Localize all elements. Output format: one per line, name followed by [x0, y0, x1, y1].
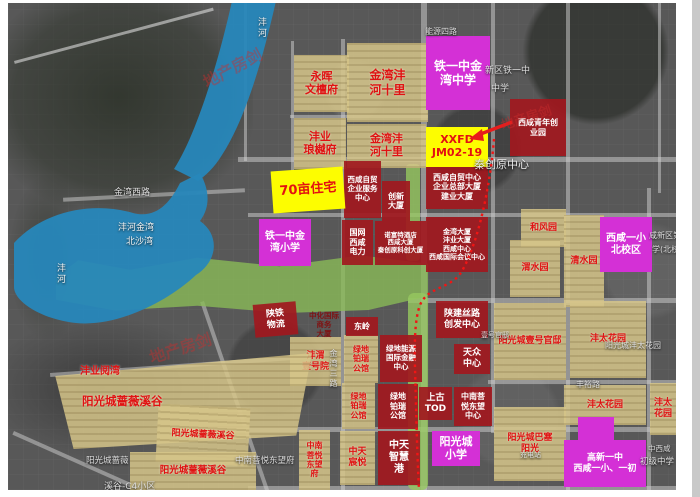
label-line: 国网 — [350, 228, 366, 237]
label-line: 湾中学 — [440, 73, 476, 87]
label-line: 西咸一小、一初 — [573, 464, 636, 475]
label-line: 沣太花园 — [587, 400, 623, 411]
block-lvdi-borui-guan-c: 绿地 铂瑞 公馆 — [378, 384, 418, 429]
label-line: 金湾大厦 — [443, 228, 471, 236]
label-line: 宸悦 — [348, 458, 366, 469]
block-dongling: 东岭 — [346, 317, 378, 336]
road-label-jinwan-sanlu: 金湾三路 — [328, 349, 339, 389]
label-line: 业园 — [530, 128, 546, 137]
label-line: 沣业大厦 — [443, 236, 471, 244]
bg-label-qiangwei-1: 阳光城蔷薇 — [86, 454, 129, 466]
label-line: 悦东望 — [461, 402, 485, 411]
label-line: 大厦 — [304, 329, 344, 338]
label-line: 河十里 — [370, 146, 403, 159]
label-line: 创发中心 — [444, 320, 480, 331]
road-label-jinwan-xilu: 金湾西路 — [114, 185, 150, 198]
label-line: TOD — [425, 404, 446, 415]
block-zhongtian-chenyue: 中天 宸悦 — [340, 431, 375, 485]
label-line: 电力 — [350, 247, 366, 256]
road-label-fengyu-lu: 丰裕路 — [576, 379, 600, 390]
label-line: 高新一中 — [587, 453, 623, 464]
label-line: 文檀府 — [305, 84, 338, 97]
label-line: 永晖 — [311, 71, 333, 84]
label-line: 西咸自贸中心 — [433, 173, 481, 182]
label-line: 东岭 — [354, 322, 370, 331]
bg-label-qiangwei-2: 溪谷-C4小区 — [104, 479, 155, 490]
label-line: 中南 — [307, 441, 323, 450]
label-line: 创新 — [388, 192, 404, 201]
label-line: 铂瑞 — [353, 354, 369, 363]
label-line: 河十里 — [369, 83, 405, 97]
label-line: 西咸 — [350, 238, 366, 247]
right-edge-strip — [692, 0, 700, 497]
label-line: 70亩住宅 — [279, 180, 337, 199]
block-basai-yangguang: 阳光城巴塞 阳光 — [494, 407, 566, 481]
label-line: 阳光城蔷薇溪谷 — [160, 465, 227, 476]
label-line: 中心 — [394, 363, 409, 372]
label-line: 铂瑞 — [390, 402, 406, 411]
bg-label-chuji-zhongxue: 初级中学 — [640, 455, 674, 467]
label-line: 沣业 — [309, 131, 331, 144]
block-fengtai-huayuan-3: 沣太 花园 — [650, 383, 676, 435]
block-tieyizhong-jinwan-zhongxue: 铁一中金 湾中学 — [426, 36, 490, 110]
label-line: 铂瑞 — [351, 401, 367, 410]
label-line: 公馆 — [353, 364, 369, 373]
block-tieyizhong-jinwan-xiaoxue: 铁一中金 湾小学 — [259, 219, 311, 266]
block-xixian-yixiao-beixiaoqu: 西咸一小 北校区 — [600, 217, 652, 272]
label-line: 中天 — [389, 440, 409, 452]
label-line: 天众 — [463, 348, 481, 359]
block-yangguangcheng-xiaoxue: 阳光城 小学 — [432, 431, 480, 466]
water-label-fenghe-jinwan: 沣河金湾 — [118, 220, 154, 233]
label-line: 企业总部大厦 — [433, 182, 481, 191]
block-jinwan-dasha-qun: 金湾大厦 沣业大厦 西咸中心 西咸国际会议中心 — [426, 217, 488, 272]
block-lvdi-borui-guan-b: 绿地 铂瑞 公馆 — [342, 383, 375, 429]
bg-label-chongdianzhan: 充电站 — [520, 450, 541, 460]
block-lvdi-nengyuan: 绿地能源 国际金融 中心 — [380, 335, 422, 382]
label-line: 沣太 — [654, 398, 672, 409]
label-line: 小学 — [445, 449, 467, 462]
label-line: 西咸中心 — [443, 245, 471, 253]
bg-label-xianxinqu: 咸新区第 — [649, 230, 676, 241]
label-line: 公馆 — [351, 411, 367, 420]
block-zhongnan-dongwang-zhongxin: 中南菩 悦东望 中心 — [454, 387, 492, 426]
block-gaoxin-yizhong: 高新一中 西咸一小、一初 — [564, 440, 646, 487]
block-jinwan-fenghe-shili-north: 金湾沣 河十里 — [347, 43, 428, 122]
label-line: 阳光城 — [440, 436, 473, 449]
block-yangguangcheng-yihao-guandi: 阳光城壹号官邸 — [494, 303, 566, 380]
label-line: 和风园 — [530, 223, 557, 234]
label-line: 陕建丝路 — [444, 309, 480, 320]
label-line: 阳光城蔷薇溪谷 — [171, 428, 234, 442]
bg-label-yihao-guandi: 壹号官邸 — [481, 330, 509, 340]
label-line: 商务 — [304, 320, 344, 329]
bg-label-yangguang-fengtai: 阳光城沣太花园 — [605, 340, 661, 351]
block-fengye-langyuefu: 沣业 琅樾府 — [294, 118, 346, 169]
block-xixian-qingnian-chuangyeyuan: 西咸青年创 业园 — [510, 99, 566, 156]
block-qingshuiyuan: 清水园 — [564, 215, 604, 307]
label-line: 大厦 — [388, 201, 404, 210]
bg-label-xinqu-tieyizhong: 新区铁一中 — [485, 63, 530, 76]
block-zimao-qiye-fuwu-zhongxin: 西咸自贸 企业服务 中心 — [344, 161, 381, 218]
water-label-fenghe-river: 沣河 — [255, 17, 268, 39]
label-line: 中天 — [348, 447, 366, 458]
satellite-map: 永晖 文檀府 金湾沣 河十里 沣业 琅樾府 金湾沣 河十里 和风园 渭水园 清水… — [8, 3, 676, 490]
water-label-fenghe-lake: 沣河 — [54, 263, 67, 285]
block-guowang-xixian-dianli: 国网 西咸 电力 — [342, 220, 373, 265]
water-label-beishawan: 北沙湾 — [126, 234, 153, 247]
label-line: 绿地 — [390, 392, 406, 401]
label-line: 中化国际 — [304, 311, 344, 320]
label-line: 琅樾府 — [304, 144, 337, 157]
block-70mu-zhuzhai: 70亩住宅 — [271, 167, 346, 214]
label-line: 中心 — [463, 359, 481, 370]
block-tianzhong-zhongxin: 天众 中心 — [454, 344, 490, 374]
label-line: 中心 — [465, 411, 481, 420]
block-weishuiyuan: 渭水园 — [510, 240, 560, 297]
label-line: 湾小学 — [270, 243, 300, 255]
label-line: 西咸一小 — [606, 233, 646, 245]
label-line: 秦创原科创大厦 — [378, 247, 424, 255]
label-fengye-yuewan: 沣业阅湾 — [80, 362, 120, 377]
bg-label-zhongnan-dongwangfu: 中南菩悦东望府 — [235, 454, 295, 466]
block-lvdi-borui-guan-a: 绿地 铂瑞 公馆 — [344, 335, 378, 383]
label-line: 府 — [311, 469, 319, 478]
block-shanggu-tod: 上古 TOD — [419, 387, 452, 420]
label-line: 菩悦 — [307, 451, 323, 460]
label-line: 金湾沣 — [369, 68, 405, 82]
block-shantie-wuliu: 陕铁 物流 — [253, 301, 299, 338]
label-line: 绿地 — [351, 392, 367, 401]
label-line: 西咸国际会议中心 — [429, 253, 485, 261]
bg-label-zhongxue: 中学 — [491, 81, 509, 94]
label-line: 上古 — [426, 393, 444, 404]
label-line: 绿地 — [353, 345, 369, 354]
label-line: 铁一中金 — [265, 231, 305, 243]
label-line: 中南菩 — [461, 392, 485, 401]
label-line: 阳光城巴塞 — [507, 433, 552, 444]
label-zhonghua-shangwu-dasha: 中化国际 商务 大厦 — [304, 311, 344, 338]
label-line: 清水园 — [570, 256, 597, 267]
block-zhongtian-zhihuigang: 中天 智慧 港 — [378, 431, 420, 485]
label-line: 建业大厦 — [441, 192, 473, 201]
label-qinchuangyuan-zhongxin: 秦创原中心 — [474, 156, 529, 172]
label-line: 公馆 — [390, 411, 406, 420]
bg-label-xuebeixiao: 学(北校 — [652, 244, 676, 255]
label-qiangwei-xigu-1: 阳光城蔷薇溪谷 — [82, 393, 163, 409]
label-line: 花园 — [654, 409, 672, 420]
label-line: 中心 — [355, 194, 370, 203]
label-line: 北校区 — [611, 245, 641, 257]
label-line: 物流 — [267, 319, 286, 331]
bg-label-zhongxixian: 中西咸 — [648, 443, 671, 454]
block-chuangxin-dasha: 创新 大厦 — [382, 181, 410, 221]
screenshot-page: 永晖 文檀府 金湾沣 河十里 沣业 琅樾府 金湾沣 河十里 和风园 渭水园 清水… — [0, 0, 700, 497]
label-line: 铁一中金 — [434, 59, 482, 73]
label-line: 智慧 — [389, 452, 409, 464]
block-zhongnan-dongwangfu: 中南 菩悦 东望 府 — [299, 430, 330, 490]
road-label-nengyuan-silu: 能源四路 — [425, 26, 457, 37]
label-line: 港 — [394, 464, 404, 476]
block-nuofute-jiudian: 诺富特酒店 西咸大厦 秦创原科创大厦 — [375, 221, 426, 265]
label-line: 渭水园 — [521, 263, 548, 274]
block-yonghui-wentanfu: 永晖 文檀府 — [294, 55, 349, 112]
label-line: 西咸青年创 — [518, 118, 558, 127]
